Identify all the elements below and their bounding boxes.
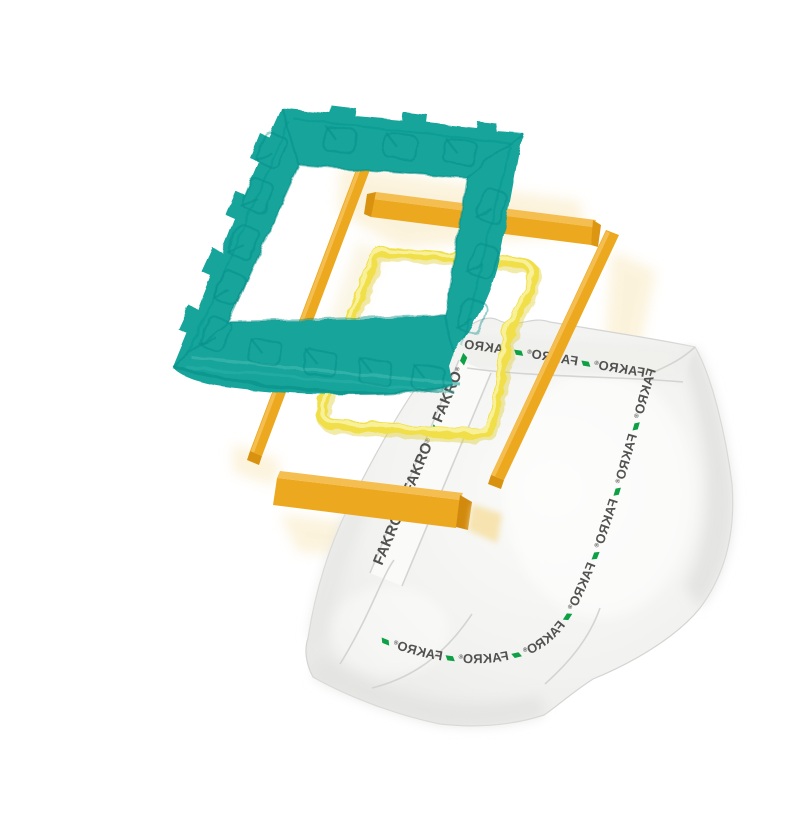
fakro-stripe-left: FAKRO® ▰ FAKRO® ▰ FAKRO® ▰ FAKRO® ▰ xyxy=(40,16,473,568)
product-illustration: FAKRO® ▰ FAKRO® ▰ FAKRO® ▰ FAKRO® ▰ FAKR… xyxy=(40,16,800,816)
product-image: FAKRO® ▰ FAKRO® ▰ FAKRO® ▰ FAKRO® ▰ FAKR… xyxy=(40,16,800,816)
package-print-front: FAKRO® ▰ FAKRO® ▰ FAKRO® ▰ FAKRO® ▰ xyxy=(40,16,473,568)
